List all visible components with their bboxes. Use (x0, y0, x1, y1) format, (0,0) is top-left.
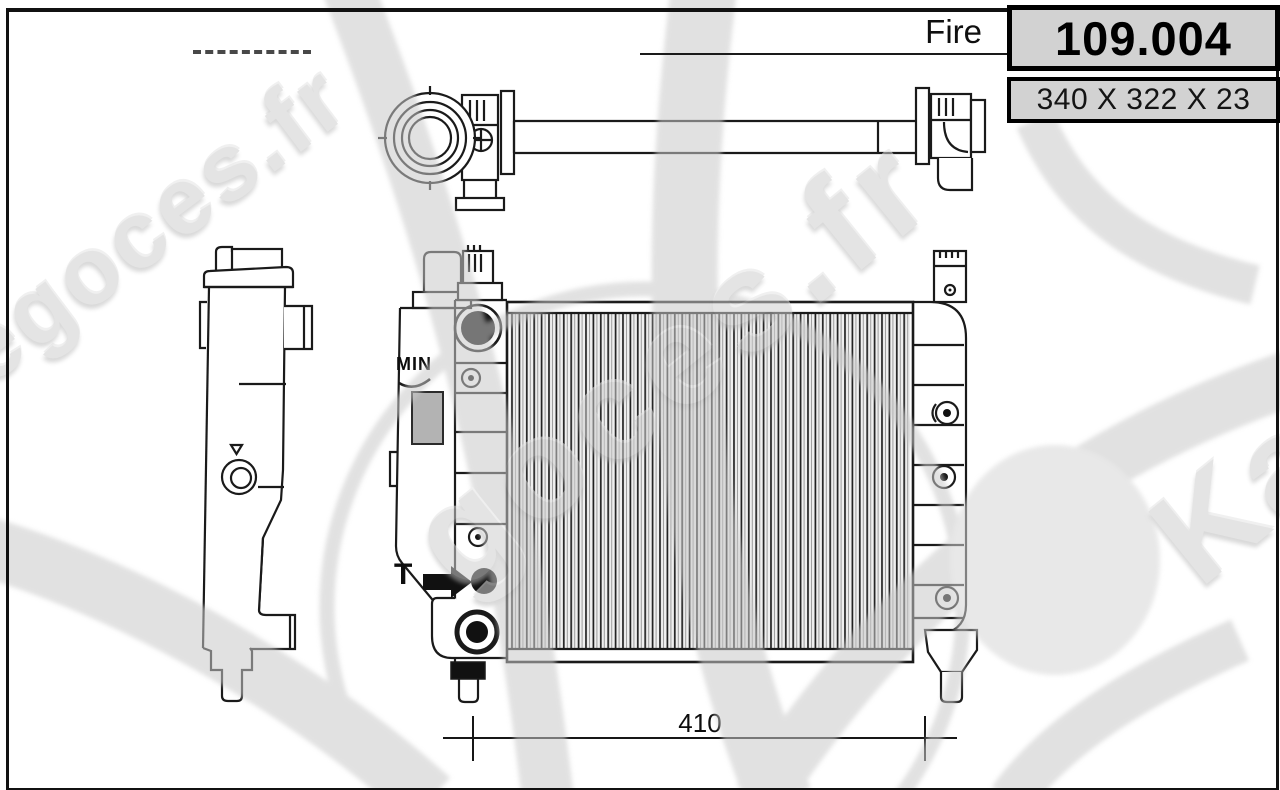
part-number-value: 109.004 (1055, 11, 1232, 66)
min-level-label: MIN (396, 354, 432, 375)
thermoswitch-label: T (394, 558, 412, 592)
front-view-radiator (390, 245, 977, 702)
part-number-box: 109.004 (1007, 5, 1280, 71)
model-name-label: Fire (640, 12, 1008, 52)
top-view-upper-tank (378, 86, 985, 210)
width-dimension-value: 410 (660, 708, 740, 739)
dimensions-value: 340 X 322 X 23 (1037, 83, 1251, 117)
model-name-cell: Fire (640, 12, 1008, 55)
dimensions-box: 340 X 322 X 23 (1007, 77, 1280, 123)
side-view-radiator (200, 247, 312, 701)
catalog-page: MIN T 410 negoces.fr goces.fr Kap Fire 1… (0, 0, 1280, 790)
